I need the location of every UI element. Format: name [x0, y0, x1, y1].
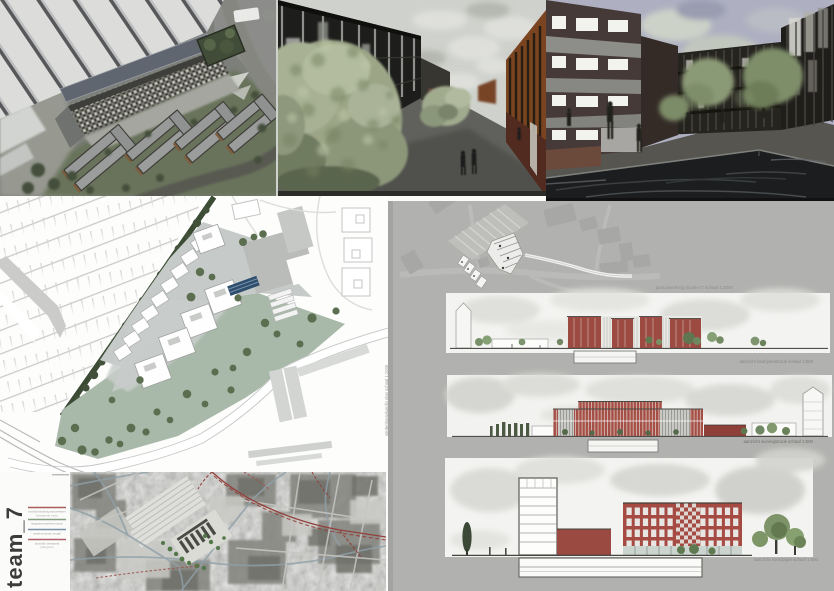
svg-text:aanzicht noordzijde schaal 1:: aanzicht noordzijde schaal 1:500: [754, 557, 819, 562]
svg-text:plangrens: plangrens: [40, 545, 54, 549]
svg-text:bestaande route: bestaande route: [36, 513, 58, 517]
svg-text:langzaamverkeersroute: langzaamverkeersroute: [31, 521, 63, 525]
svg-text:team_7: team_7: [2, 506, 27, 588]
svg-text:waterstructuur singel: waterstructuur singel: [33, 531, 61, 535]
svg-text:aanzicht woningstrook schaal: aanzicht woningstrook schaal 1:500: [743, 439, 813, 444]
svg-text:aanzicht bedrijvenstrook scha: aanzicht bedrijvenstrook schaal 1:500: [740, 359, 814, 364]
svg-text:planuitwerking locatie t7 s: planuitwerking locatie t7 schaal 1:2000: [656, 285, 734, 290]
